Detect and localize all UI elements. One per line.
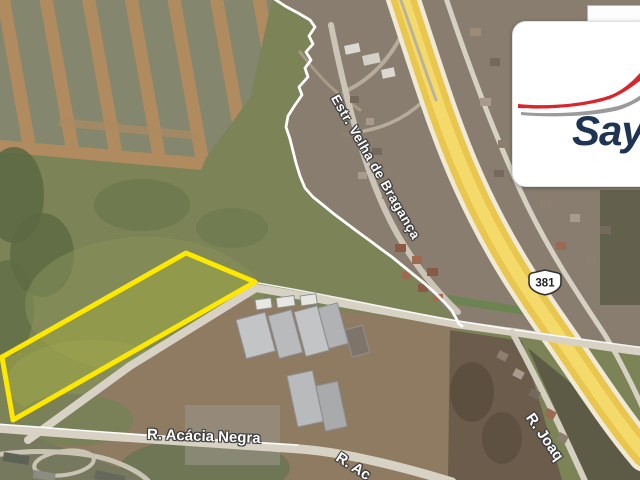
logo-swoosh-icon: [513, 22, 640, 186]
terrain-dark-patch: [600, 190, 640, 305]
brand-name-text: Say: [572, 110, 640, 152]
svg-text:381: 381: [535, 278, 555, 290]
route-shield-381: 381: [528, 269, 562, 296]
brand-logo-card: Say: [512, 21, 640, 187]
map-viewport[interactable]: Estr. Velha de Bragança R. Acácia Negra …: [0, 0, 640, 480]
